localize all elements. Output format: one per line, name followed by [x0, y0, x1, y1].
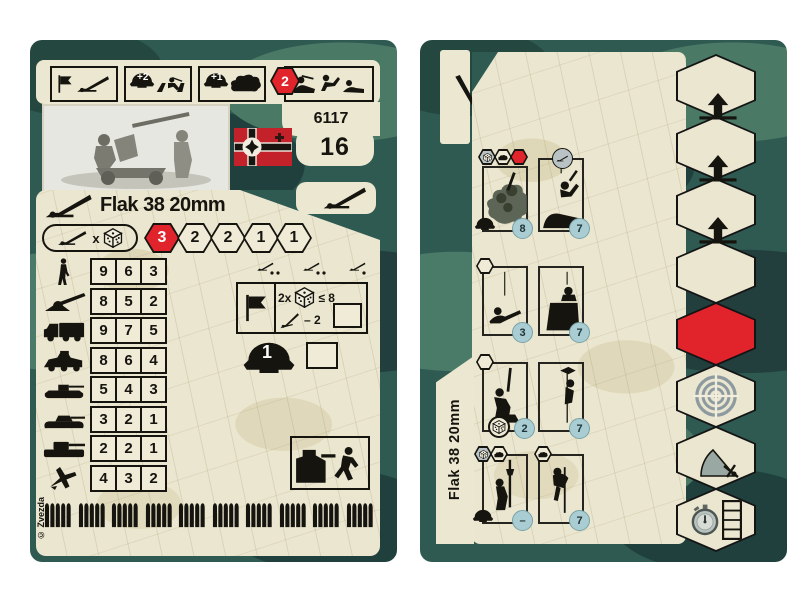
nation-flag — [234, 128, 292, 166]
dice-icon — [294, 287, 315, 308]
fire-value: 3 — [90, 406, 117, 433]
fire-value: 3 — [140, 258, 167, 285]
unit-type-gun-icon — [44, 192, 96, 220]
attack-dice-pill: x — [42, 224, 138, 252]
fire-value: 2 — [140, 288, 167, 315]
hex-badge — [534, 446, 552, 462]
gun-circle-badge — [552, 148, 573, 169]
ammo-group-icon — [212, 498, 240, 530]
fire-row-field-gun: 852 — [42, 288, 167, 315]
range-hex-2: 2 — [177, 223, 213, 253]
gun-icon — [322, 186, 370, 210]
stopwatch-icon — [691, 504, 719, 536]
fire-value: 2 — [115, 406, 142, 433]
flag-icon — [244, 293, 268, 323]
ammo-group-icon — [78, 498, 106, 530]
gun-icon — [57, 230, 89, 246]
unit-stat-card: +2 +1 2 6117 — [30, 40, 397, 562]
fire-row-heavy-tank: 221 — [42, 435, 167, 462]
fire-arc-hex — [676, 426, 756, 490]
ammo-group-icon — [111, 498, 139, 530]
infantry-icon — [42, 258, 92, 285]
truck-icon — [42, 319, 92, 342]
up-arrow-icon — [698, 155, 738, 183]
casualty-marker-slot — [306, 342, 338, 369]
field-gun-icon — [42, 290, 92, 312]
helmet-icon: +2 — [129, 71, 155, 88]
heavy-tank-icon — [42, 438, 92, 459]
fire-value: 8 — [90, 288, 117, 315]
multiplier-label: x — [92, 231, 99, 246]
hex-badge — [476, 258, 494, 274]
ammo-group-icon — [145, 498, 173, 530]
fire-value: 9 — [90, 317, 117, 344]
top-banner: +2 +1 2 — [36, 60, 380, 104]
range-hex-1: 3 — [144, 223, 180, 253]
tank-overrun-icon — [295, 441, 365, 485]
fire-row-aircraft: 432 — [42, 465, 167, 492]
rally-flag-cell — [238, 284, 276, 332]
helmet-icon: +1 — [203, 71, 229, 88]
light-tank-icon — [42, 379, 92, 400]
helmet-icon — [472, 508, 494, 522]
ammo-group-icon — [245, 498, 273, 530]
copyright-label: © Zvezda — [36, 428, 46, 540]
points-value: 16 — [320, 133, 350, 162]
ammo-group-icon — [312, 498, 340, 530]
range-hex-5: 1 — [276, 223, 312, 253]
vertical-title: Flak 38 20mm — [447, 399, 463, 500]
dice-icon — [103, 228, 123, 248]
fire-value: 2 — [140, 465, 167, 492]
flag-icon — [57, 74, 73, 94]
fire-value: 5 — [115, 288, 142, 315]
rally-penalty: – 2 — [304, 313, 321, 327]
fire-value: 9 — [90, 258, 117, 285]
gun-tab — [296, 182, 376, 214]
unit-order-card: 8 7 3 7 2 7 — [420, 40, 787, 562]
order-value-circle: 7 — [569, 418, 590, 439]
modifier-box-concealed: +1 — [198, 66, 266, 102]
towed-gun-range-icons — [236, 256, 368, 278]
up-arrow-icon — [698, 93, 738, 121]
aircraft-icon — [42, 466, 92, 490]
bush-icon — [230, 72, 262, 93]
fire-row-light-tank: 543 — [42, 376, 167, 403]
fire-value: 7 — [115, 317, 142, 344]
fire-value: 4 — [90, 465, 117, 492]
order-value-circle: – — [512, 510, 533, 531]
gun-top-tab — [440, 50, 470, 144]
range-hex-3: 2 — [210, 223, 246, 253]
ammo-group-icon — [279, 498, 307, 530]
timer-hex — [676, 488, 756, 552]
stat-panel: Flak 38 20mm x 3 2 2 1 1 963 — [36, 190, 380, 556]
entrenched-bonus: +2 — [137, 72, 148, 83]
fire-arc-icon — [690, 436, 742, 480]
crawling-crew-icon — [292, 71, 366, 97]
hex-column — [676, 54, 760, 552]
range-attack-row: 3 2 2 1 1 — [144, 223, 312, 253]
fire-table: 963 852 975 864 543 — [42, 258, 167, 494]
order-value-circle: 8 — [512, 218, 533, 239]
trench-soldier-icon — [156, 72, 186, 94]
modifier-box-entrenched: +2 — [124, 66, 192, 102]
rally-multiplier: 2x — [278, 291, 291, 305]
hex-badge — [490, 446, 508, 462]
order-panel: 8 7 3 7 2 7 — [472, 52, 686, 544]
move-hex-4 — [676, 240, 756, 304]
modifier-box-flag-gun — [50, 66, 118, 102]
fire-row-armored-car: 864 — [42, 347, 167, 374]
fire-value: 1 — [140, 435, 167, 462]
ammo-track — [44, 498, 374, 530]
medium-tank-icon — [42, 409, 92, 430]
helmet-icon — [474, 216, 496, 230]
fire-value: 6 — [115, 258, 142, 285]
fire-value: 2 — [90, 435, 117, 462]
gun-icon — [277, 311, 303, 329]
order-value-circle: 7 — [569, 218, 590, 239]
rally-marker-slot — [333, 303, 362, 328]
hex-badge — [476, 354, 494, 370]
overrun-box — [290, 436, 370, 490]
order-value-circle: 7 — [569, 510, 590, 531]
fire-value: 6 — [115, 347, 142, 374]
target-hex — [676, 364, 756, 428]
red-hex-badge — [510, 149, 528, 165]
fire-row-infantry: 963 — [42, 258, 167, 285]
concealed-bonus: +1 — [211, 72, 222, 83]
rally-box: 2x ≤ 8 – 2 — [236, 282, 368, 334]
ammo-group-icon — [44, 498, 72, 530]
turn-track-icon — [722, 499, 742, 541]
vertical-title-tab: Flak 38 20mm — [436, 356, 474, 544]
ammo-group-icon — [178, 498, 206, 530]
fire-value: 3 — [140, 376, 167, 403]
product-code: 6117 — [314, 110, 349, 128]
fire-value: 8 — [90, 347, 117, 374]
ammo-group-icon — [346, 498, 374, 530]
casualty-value: 1 — [262, 342, 272, 363]
scan-canvas: +2 +1 2 6117 — [0, 0, 800, 600]
fire-value: 5 — [140, 317, 167, 344]
fire-value: 1 — [140, 406, 167, 433]
fire-value: 5 — [90, 376, 117, 403]
range-hex-4: 1 — [243, 223, 279, 253]
casualty-helmet: 1 — [242, 338, 296, 374]
armored-car-icon — [42, 349, 92, 372]
rally-roll-row: 2x ≤ 8 — [278, 287, 335, 308]
unit-title: Flak 38 20mm — [100, 194, 225, 217]
order-value-circle: 3 — [512, 322, 533, 343]
fire-value: 4 — [140, 347, 167, 374]
flak-model-silhouette — [44, 106, 228, 194]
fire-value: 2 — [115, 435, 142, 462]
rally-penalty-row: – 2 — [278, 313, 321, 327]
fire-value: 4 — [115, 376, 142, 403]
attack-hex-red — [676, 302, 756, 366]
dice-circle-badge — [488, 416, 510, 438]
gun-icon — [76, 75, 112, 93]
target-icon — [693, 373, 739, 419]
fire-row-medium-tank: 321 — [42, 406, 167, 433]
up-arrow-icon — [698, 217, 738, 245]
fire-value: 3 — [115, 465, 142, 492]
panel-corner-cut — [472, 52, 498, 92]
points-box: 16 — [296, 128, 374, 166]
fire-row-truck: 975 — [42, 317, 167, 344]
model-photo — [44, 106, 228, 194]
order-value-circle: 2 — [514, 418, 535, 439]
order-value-circle: 7 — [569, 322, 590, 343]
